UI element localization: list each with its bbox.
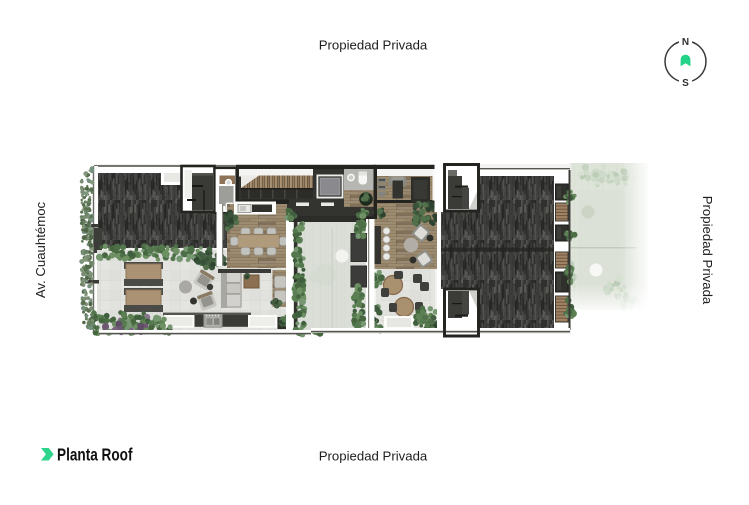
svg-text:Propiedad Privada: Propiedad Privada	[319, 38, 428, 53]
svg-text:Planta Roof: Planta Roof	[57, 445, 133, 465]
svg-text:Propiedad Privada: Propiedad Privada	[319, 449, 428, 464]
svg-text:Propiedad Privada: Propiedad Privada	[700, 196, 715, 305]
svg-text:N: N	[682, 37, 689, 48]
svg-text:Av. Cuauhtémoc: Av. Cuauhtémoc	[33, 201, 48, 298]
svg-text:S: S	[682, 78, 689, 89]
